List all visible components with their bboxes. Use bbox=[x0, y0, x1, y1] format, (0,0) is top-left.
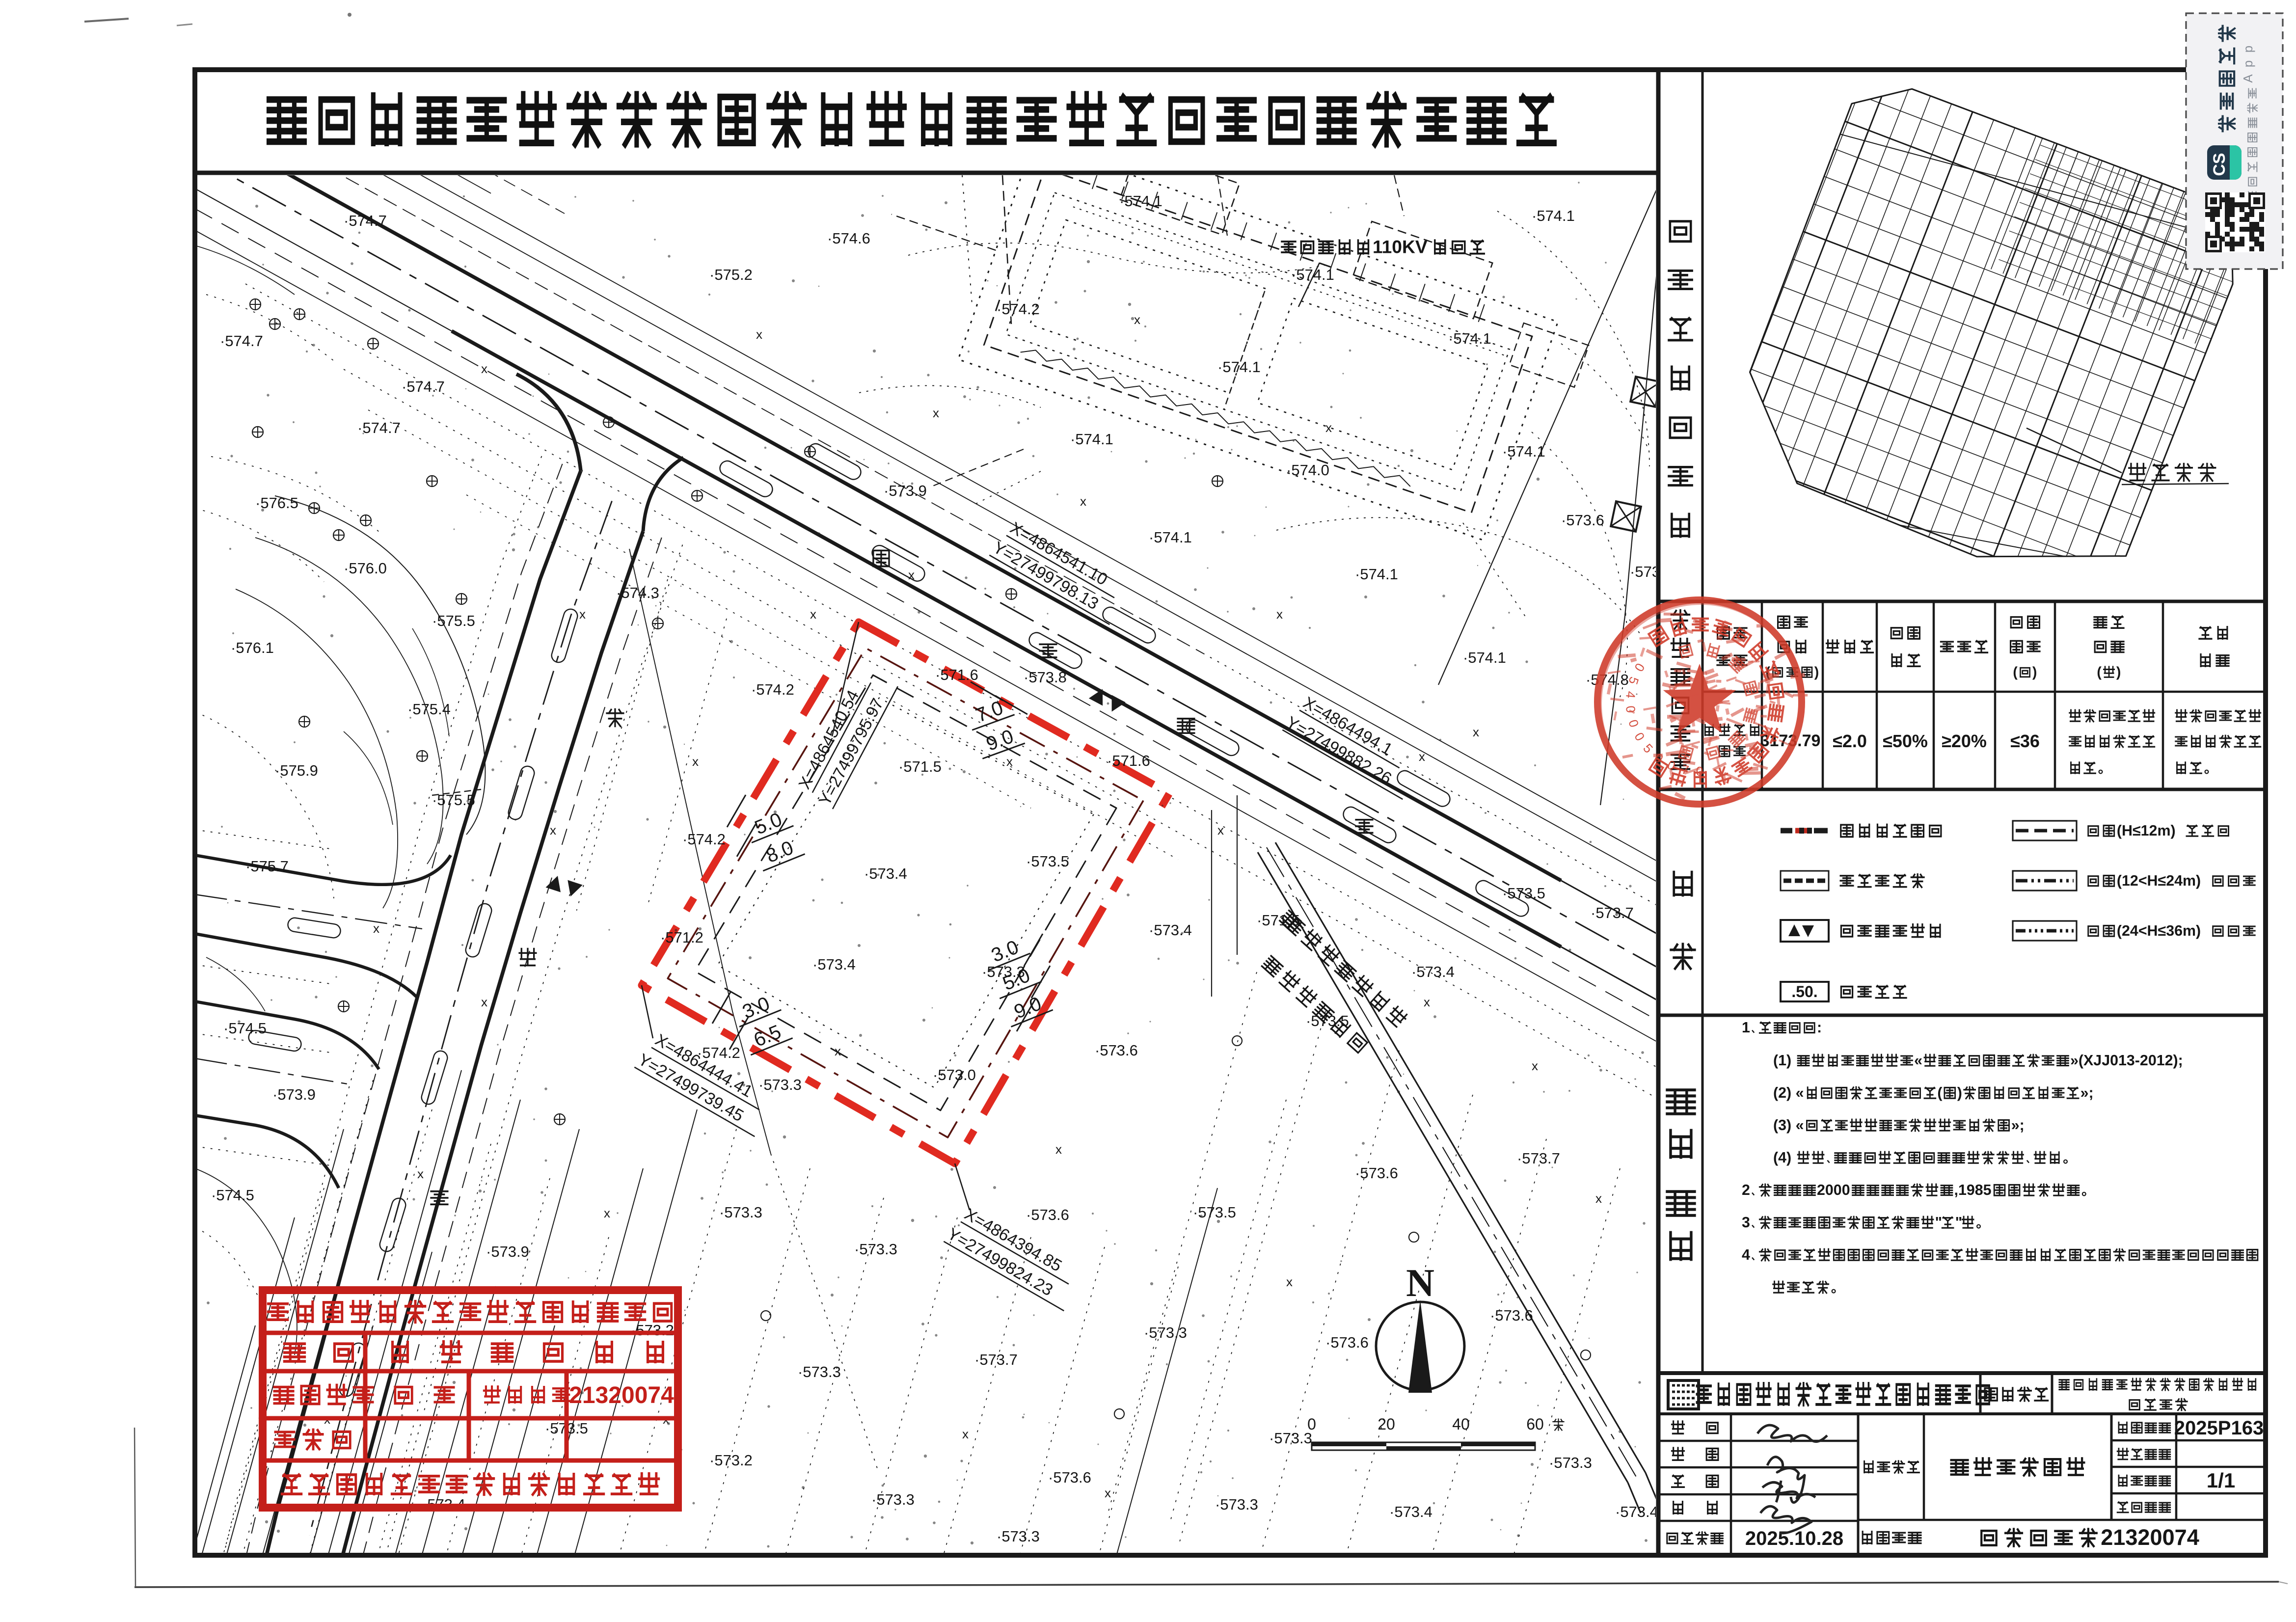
svg-text:·574.1: ·574.1 bbox=[1355, 566, 1398, 583]
svg-text:»;: »; bbox=[2080, 1084, 2094, 1101]
svg-text:·573.6: ·573.6 bbox=[1095, 1042, 1138, 1059]
svg-text:≥20%: ≥20% bbox=[1942, 731, 1987, 751]
svg-text:·573.9: ·573.9 bbox=[272, 1086, 316, 1103]
svg-text:20: 20 bbox=[1378, 1415, 1395, 1433]
svg-text:·574.3: ·574.3 bbox=[616, 584, 659, 601]
svg-text:p: p bbox=[2241, 60, 2255, 67]
svg-text::: : bbox=[1817, 1019, 1822, 1036]
svg-text:(H≤12m): (H≤12m) bbox=[2117, 822, 2176, 839]
svg-text:(2) «: (2) « bbox=[1773, 1084, 1804, 1101]
svg-text:·573.7: ·573.7 bbox=[1517, 1150, 1560, 1167]
svg-text:x: x bbox=[579, 607, 586, 622]
svg-text:·573.5: ·573.5 bbox=[1026, 853, 1069, 870]
svg-text:x: x bbox=[481, 361, 487, 376]
svg-text:·573.9: ·573.9 bbox=[884, 482, 927, 499]
svg-text:21320074: 21320074 bbox=[2101, 1525, 2199, 1550]
svg-text:p: p bbox=[2241, 46, 2255, 53]
svg-text:·573.7: ·573.7 bbox=[1591, 904, 1634, 921]
svg-text:(: ( bbox=[2013, 665, 2018, 680]
svg-text:»(XJJ013-2012);: »(XJJ013-2012); bbox=[2070, 1052, 2183, 1069]
svg-text:x: x bbox=[756, 327, 762, 342]
svg-text:·574.2: ·574.2 bbox=[751, 681, 794, 698]
svg-text:≤36: ≤36 bbox=[2010, 731, 2040, 751]
svg-text:·573.7: ·573.7 bbox=[974, 1351, 1018, 1368]
svg-text:·574.1: ·574.1 bbox=[1291, 266, 1334, 283]
svg-text:·574.5: ·574.5 bbox=[211, 1187, 254, 1204]
svg-text:4: 4 bbox=[1742, 1246, 1750, 1263]
svg-text:·573.3: ·573.3 bbox=[798, 1363, 841, 1380]
svg-text:·576.1: ·576.1 bbox=[231, 639, 274, 656]
svg-text:·575.5: ·575.5 bbox=[432, 612, 475, 629]
svg-text:1: 1 bbox=[1742, 1019, 1750, 1036]
svg-text:·573.4: ·573.4 bbox=[1615, 1503, 1658, 1520]
svg-text:2: 2 bbox=[1742, 1182, 1750, 1198]
svg-text:·574.1: ·574.1 bbox=[1463, 649, 1506, 666]
svg-text:x: x bbox=[1473, 725, 1479, 739]
svg-text:·573.3: ·573.3 bbox=[871, 1491, 915, 1508]
svg-text:0: 0 bbox=[1307, 1415, 1316, 1433]
svg-text:·573.3: ·573.3 bbox=[982, 963, 1025, 980]
svg-text:·573.5: ·573.5 bbox=[1502, 885, 1545, 902]
svg-text:≤50%: ≤50% bbox=[1883, 731, 1928, 751]
svg-text:): ) bbox=[1957, 1084, 1962, 1101]
svg-text:": " bbox=[1955, 1214, 1962, 1231]
svg-text:·573.9: ·573.9 bbox=[486, 1243, 529, 1260]
svg-text:·573.3: ·573.3 bbox=[758, 1076, 802, 1093]
svg-text:»;: »; bbox=[2011, 1117, 2025, 1134]
svg-text:x: x bbox=[1325, 420, 1332, 435]
svg-text:·574.6: ·574.6 bbox=[827, 230, 870, 247]
svg-text:·574.5: ·574.5 bbox=[223, 1020, 267, 1037]
svg-text:): ) bbox=[2032, 665, 2037, 680]
svg-text:·575.5: ·575.5 bbox=[432, 791, 475, 809]
svg-text:2025P163: 2025P163 bbox=[2174, 1417, 2264, 1439]
svg-text:·574.7: ·574.7 bbox=[344, 212, 387, 229]
svg-text:·573.4: ·573.4 bbox=[1411, 963, 1455, 980]
svg-text:x: x bbox=[604, 1206, 610, 1220]
svg-text:x: x bbox=[1286, 1274, 1293, 1289]
svg-text:·573.6: ·573.6 bbox=[1355, 1164, 1398, 1182]
svg-text:x: x bbox=[1006, 754, 1013, 769]
svg-text:x: x bbox=[1532, 1058, 1538, 1073]
svg-text:x: x bbox=[1217, 823, 1224, 838]
svg-text:(3) «: (3) « bbox=[1773, 1117, 1804, 1134]
svg-text:0: 0 bbox=[1696, 764, 1703, 779]
svg-text:x: x bbox=[417, 1166, 424, 1181]
svg-text:): ) bbox=[2116, 665, 2121, 680]
svg-text:·573.3: ·573.3 bbox=[997, 1528, 1040, 1545]
svg-text:x: x bbox=[933, 405, 939, 420]
svg-text:·574.1: ·574.1 bbox=[1217, 358, 1261, 376]
svg-text:x: x bbox=[1595, 1191, 1602, 1206]
svg-text:N: N bbox=[1406, 1262, 1434, 1305]
svg-text:CS: CS bbox=[2210, 153, 2229, 176]
svg-text:110KV: 110KV bbox=[1373, 237, 1428, 257]
svg-text:·573.3: ·573.3 bbox=[1144, 1324, 1187, 1341]
svg-text:·574.1: ·574.1 bbox=[1070, 431, 1113, 448]
svg-text:(1): (1) bbox=[1773, 1052, 1791, 1069]
svg-text:·573.5: ·573.5 bbox=[1306, 1012, 1349, 1029]
svg-text:(24<H≤36m): (24<H≤36m) bbox=[2117, 922, 2201, 939]
svg-text:x: x bbox=[810, 607, 816, 622]
svg-text:·574.2: ·574.2 bbox=[682, 831, 726, 848]
svg-text:·573.4: ·573.4 bbox=[1149, 921, 1192, 939]
svg-text:·571.6: ·571.6 bbox=[935, 666, 978, 683]
svg-text:·573.3: ·573.3 bbox=[1215, 1496, 1258, 1513]
svg-text:x: x bbox=[1419, 749, 1425, 764]
svg-text:·575.2: ·575.2 bbox=[709, 266, 753, 283]
svg-text:·575.9: ·575.9 bbox=[275, 762, 318, 779]
svg-text:·573.6: ·573.6 bbox=[1048, 1469, 1091, 1486]
svg-text:x: x bbox=[550, 823, 556, 838]
svg-text:x: x bbox=[962, 1427, 969, 1441]
svg-text:·574.1: ·574.1 bbox=[1448, 330, 1491, 347]
svg-text:«: « bbox=[1914, 1052, 1922, 1069]
svg-text:21320074: 21320074 bbox=[569, 1382, 674, 1408]
svg-text:(12<H≤24m): (12<H≤24m) bbox=[2117, 872, 2201, 889]
svg-text:·571.2: ·571.2 bbox=[660, 929, 703, 946]
svg-text:·573.6: ·573.6 bbox=[1325, 1334, 1369, 1351]
svg-text:·574.1: ·574.1 bbox=[1119, 192, 1162, 210]
svg-text:x: x bbox=[1080, 494, 1086, 509]
svg-text:·576.0: ·576.0 bbox=[344, 560, 387, 577]
svg-text:·573.6: ·573.6 bbox=[1561, 512, 1604, 529]
svg-text:·574.7: ·574.7 bbox=[220, 332, 263, 350]
svg-text:·573.2: ·573.2 bbox=[631, 1322, 674, 1339]
svg-text:·571.5: ·571.5 bbox=[1257, 912, 1300, 929]
svg-text:≤2.0: ≤2.0 bbox=[1833, 731, 1867, 751]
svg-text:·574.0: ·574.0 bbox=[1286, 461, 1329, 479]
svg-text:x: x bbox=[373, 921, 379, 936]
svg-text:·574.1: ·574.1 bbox=[1502, 443, 1545, 460]
svg-text:x: x bbox=[1105, 1486, 1111, 1500]
svg-text:·573.6: ·573.6 bbox=[1490, 1307, 1533, 1324]
svg-text:x: x bbox=[1424, 995, 1430, 1009]
svg-text:): ) bbox=[1814, 665, 1819, 680]
svg-text:,1985: ,1985 bbox=[1954, 1182, 1992, 1198]
svg-text:·573.3: ·573.3 bbox=[719, 1204, 762, 1221]
svg-text:x: x bbox=[1055, 1142, 1062, 1157]
svg-text:·573.6: ·573.6 bbox=[1026, 1206, 1069, 1223]
svg-text:60: 60 bbox=[1526, 1415, 1544, 1433]
svg-text:x: x bbox=[481, 995, 487, 1009]
svg-text:x: x bbox=[1276, 607, 1283, 622]
svg-text:·573.4: ·573.4 bbox=[812, 956, 856, 973]
svg-text:·573.2: ·573.2 bbox=[709, 1452, 753, 1469]
svg-text:.50.: .50. bbox=[1791, 983, 1817, 1000]
svg-text:(: ( bbox=[1937, 1084, 1943, 1101]
svg-text:·574.2: ·574.2 bbox=[697, 1044, 740, 1061]
svg-text:·571.5: ·571.5 bbox=[898, 758, 942, 775]
svg-text:·573.5: ·573.5 bbox=[1193, 1204, 1236, 1221]
svg-text:·573.8: ·573.8 bbox=[1024, 669, 1067, 686]
svg-text:x: x bbox=[835, 1044, 841, 1058]
svg-text:(: ( bbox=[2097, 665, 2102, 680]
svg-text:·574.1: ·574.1 bbox=[1532, 207, 1575, 224]
svg-text:40: 40 bbox=[1452, 1415, 1470, 1433]
svg-text:·573.4: ·573.4 bbox=[1389, 1503, 1432, 1520]
svg-text:·574.8: ·574.8 bbox=[1586, 671, 1629, 688]
svg-text:": " bbox=[1935, 1214, 1942, 1231]
svg-text:(4): (4) bbox=[1773, 1149, 1791, 1166]
svg-text:1/1: 1/1 bbox=[2207, 1469, 2235, 1492]
svg-text:·573.0: ·573.0 bbox=[933, 1066, 976, 1083]
svg-text:·573.3: ·573.3 bbox=[1269, 1430, 1312, 1447]
svg-text:x: x bbox=[692, 754, 699, 769]
svg-text:x: x bbox=[1134, 312, 1140, 327]
svg-text:·573.3: ·573.3 bbox=[854, 1241, 897, 1258]
svg-text:3: 3 bbox=[1742, 1214, 1750, 1231]
svg-text:x: x bbox=[908, 568, 915, 582]
svg-text:·573.3: ·573.3 bbox=[1549, 1454, 1592, 1471]
svg-text:·573.4: ·573.4 bbox=[864, 865, 907, 882]
svg-text:·575.4: ·575.4 bbox=[407, 701, 451, 718]
svg-text:·575.7: ·575.7 bbox=[245, 858, 289, 875]
svg-text:·574.7: ·574.7 bbox=[402, 378, 445, 395]
svg-text:·574.1: ·574.1 bbox=[1149, 529, 1192, 546]
svg-text:·574.2: ·574.2 bbox=[997, 300, 1040, 318]
svg-text:·571.6: ·571.6 bbox=[1107, 752, 1150, 769]
svg-text:2000: 2000 bbox=[1817, 1182, 1850, 1198]
svg-text:A: A bbox=[2241, 74, 2255, 83]
